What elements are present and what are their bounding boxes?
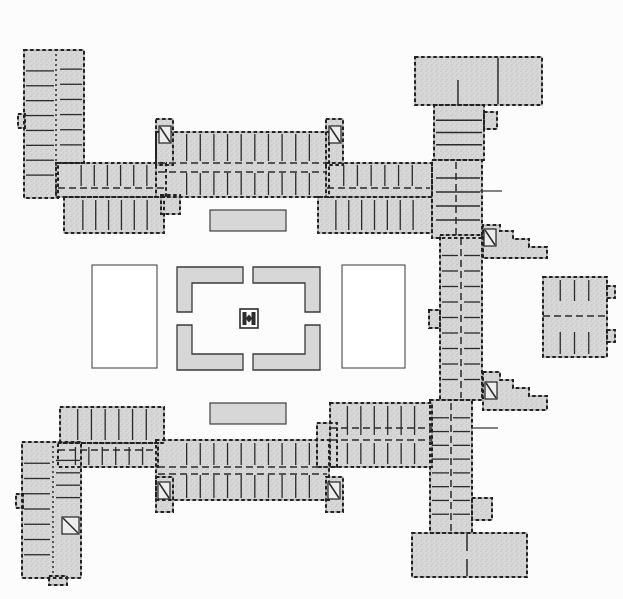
southwest-north-cells xyxy=(60,407,164,443)
south-wing-main xyxy=(156,440,329,500)
east-pavilion-bump-south xyxy=(607,330,615,342)
stair-south-tower-west xyxy=(158,482,170,499)
east-wing-south-bump xyxy=(472,498,492,520)
east-wing-west-bay xyxy=(429,310,440,328)
north-garden-bed xyxy=(210,210,286,231)
parterre-hedge-southeast xyxy=(253,325,320,370)
northwest-south-cells xyxy=(64,197,164,233)
northeast-link-side-room xyxy=(484,112,497,129)
northeast-building xyxy=(415,57,542,105)
central-fountain-ornament xyxy=(240,309,258,328)
south-wing-east-segment xyxy=(330,403,432,467)
ornament-layer xyxy=(240,309,258,328)
stair-north-tower-west xyxy=(159,126,171,143)
east-parterre-court xyxy=(342,265,405,368)
floor-plan xyxy=(0,0,623,599)
southwest-pavilion xyxy=(22,442,81,578)
north-wing-main xyxy=(156,132,329,197)
southwest-pavilion-south-bump xyxy=(49,576,67,585)
stair-south-tower-east xyxy=(328,482,340,499)
south-hall xyxy=(412,533,527,577)
east-pavilion-bump-north xyxy=(607,286,615,298)
stair-northeast-court xyxy=(484,229,496,246)
parterre-hedge-southwest xyxy=(177,325,243,370)
plan-stage xyxy=(0,0,623,599)
parterre-hedge-northeast xyxy=(253,267,320,312)
stair-southwest-pavilion xyxy=(62,517,79,534)
stair-southeast-court xyxy=(485,382,497,399)
west-parterre-court xyxy=(92,265,157,368)
north-wing-east-band xyxy=(326,163,432,197)
south-garden-bed xyxy=(210,403,286,424)
northwest-link-band xyxy=(56,163,166,197)
parterre-hedge-northwest xyxy=(177,267,243,312)
east-wing-north xyxy=(432,160,482,238)
stair-north-tower-east xyxy=(329,126,341,143)
